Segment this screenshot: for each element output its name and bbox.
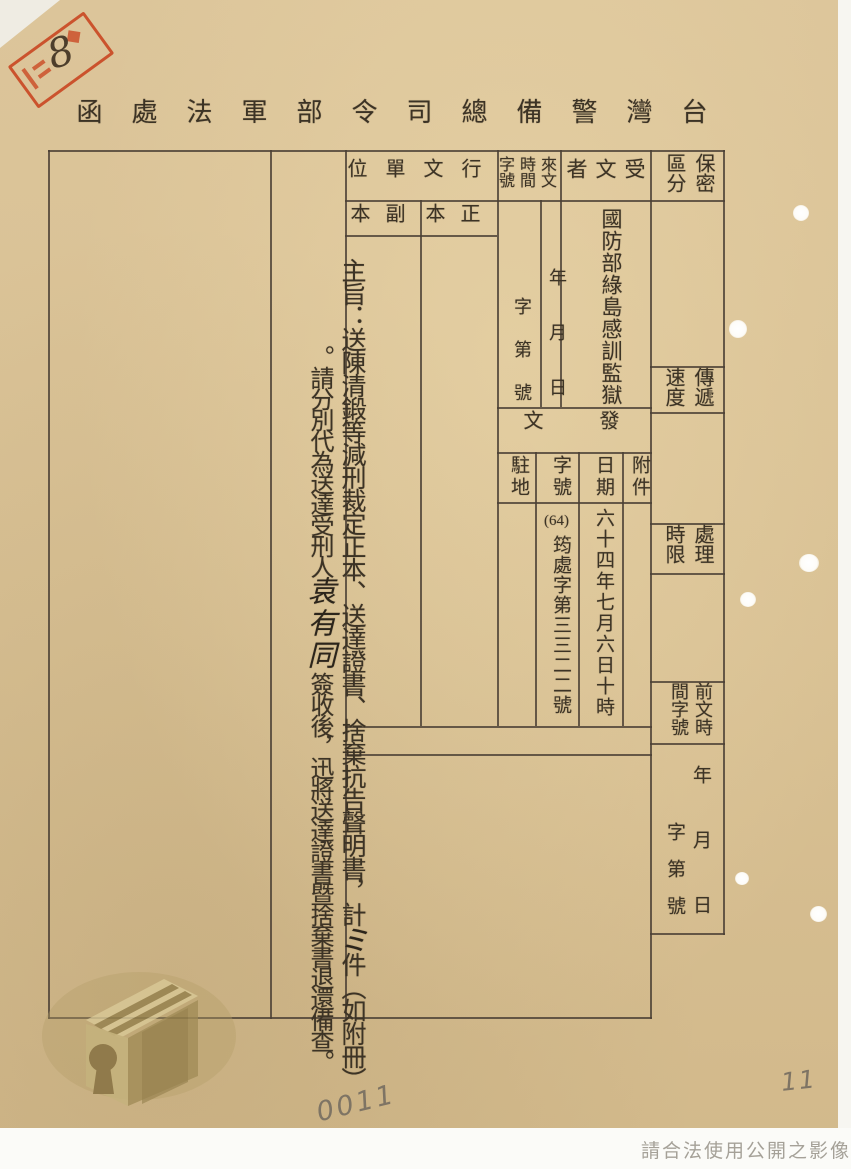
stamp-glyph-mark [32, 59, 46, 70]
scan-edge-right [838, 0, 851, 1169]
table-border [420, 200, 422, 726]
subject-text-2-tail: 簽收後，迅將送達證書暨捨棄書退還備查。 [306, 672, 332, 1071]
table-border [723, 150, 725, 935]
dispatch-attachment-label: 附件 [626, 455, 653, 499]
dispatch-refno-value: 筠處字第三三二二號 [547, 535, 574, 715]
paper-hole [799, 554, 819, 572]
stamp-glyph-mark [21, 68, 38, 90]
recipient-value: 國防部綠島感訓監獄 [596, 208, 626, 406]
table-border [497, 452, 652, 454]
table-border [650, 150, 652, 1019]
national-archives-logo [36, 966, 238, 1108]
paper-hole [729, 320, 747, 338]
incoming-doc-label: 來文時間字號 [494, 156, 557, 198]
paper-hole [810, 906, 827, 922]
stamp-glyph-mark [38, 67, 52, 78]
table-border [497, 502, 652, 504]
recipient-label: 受文者 [561, 158, 648, 186]
subject-column-2: 。請分別代為送達受刑人袁有同簽收後，迅將送達證書暨捨棄書退還備查。 [271, 253, 367, 1071]
table-border [622, 452, 624, 726]
table-border [540, 200, 542, 407]
dispatch-station-label: 駐地 [505, 455, 532, 499]
addressed-units-original-label: 正本 [415, 203, 485, 231]
paper-hole [735, 872, 749, 885]
incoming-doc-date-placeholder: 年月日 [544, 268, 570, 433]
scanned-document-page: 8 台灣警備總司令部軍法處函 保密區分 傳遞速度 處理時限 前文時間字號 年月日… [0, 0, 851, 1169]
dispatch-refno-label: 字號 [547, 455, 574, 499]
table-border [578, 452, 580, 726]
copyright-notice: 請合法使用公開之影像 [641, 1136, 851, 1163]
dispatch-date-value: 六十四年七月六日十時 [590, 508, 617, 718]
dispatch-label: 發文 [493, 410, 645, 434]
pencil-folio-number: 11 [780, 1064, 819, 1097]
document-title: 台灣警備總司令部軍法處函 [60, 98, 720, 130]
previous-doc-date-placeholder: 年月日 [687, 765, 714, 960]
table-border [48, 150, 725, 152]
table-border [650, 573, 725, 575]
subject-text-2: 。請分別代為送達受刑人 [306, 345, 332, 576]
process-deadline-label: 處理時限 [658, 524, 716, 570]
table-border [48, 150, 50, 1019]
dispatch-refno-prefix: (64) [544, 513, 569, 530]
table-border [535, 452, 537, 726]
paper-hole [740, 592, 756, 607]
security-class-label: 保密區分 [659, 153, 717, 199]
transmit-speed-label: 傳遞速度 [658, 367, 716, 411]
paper-hole [793, 205, 809, 221]
dispatch-date-label: 日期 [590, 455, 617, 499]
table-border [345, 200, 725, 202]
table-border [497, 150, 499, 726]
previous-doc-label: 前文時間字號 [667, 682, 715, 742]
previous-doc-ref-placeholder: 字第號 [661, 822, 688, 933]
table-border [650, 743, 725, 745]
subject-name-handwritten: 袁有同 [303, 576, 335, 672]
incoming-doc-ref-placeholder: 字第號 [509, 297, 535, 426]
table-border [650, 412, 725, 414]
